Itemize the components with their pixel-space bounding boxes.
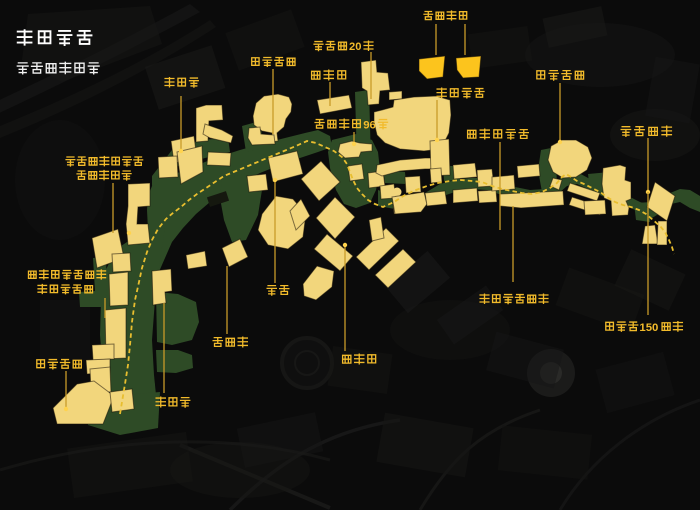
svg-text:20: 20 <box>349 41 361 53</box>
svg-text:150: 150 <box>639 322 658 334</box>
svg-text:96: 96 <box>363 119 376 131</box>
